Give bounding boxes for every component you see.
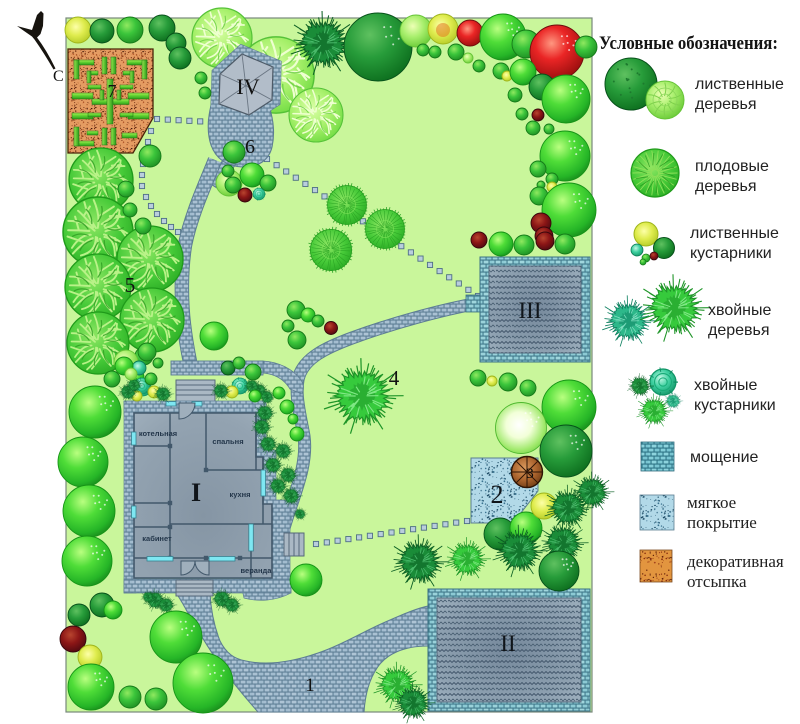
svg-text:5: 5 — [125, 273, 136, 297]
svg-text:декоративная: декоративная — [687, 552, 784, 571]
svg-text:хвойные: хвойные — [708, 302, 771, 319]
svg-text:веранда: веранда — [241, 566, 273, 575]
svg-text:IV: IV — [236, 74, 259, 99]
svg-text:кустарники: кустарники — [690, 245, 772, 262]
svg-text:котельная: котельная — [139, 429, 177, 438]
svg-text:деревья: деревья — [695, 96, 757, 113]
svg-text:Условные обозначения:: Условные обозначения: — [599, 33, 778, 54]
svg-text:мягкое: мягкое — [687, 493, 736, 512]
svg-text:I: I — [191, 478, 201, 507]
svg-text:3: 3 — [526, 466, 534, 482]
svg-text:отсыпка: отсыпка — [687, 572, 747, 591]
svg-text:кухня: кухня — [229, 490, 250, 499]
svg-text:кустарники: кустарники — [694, 397, 776, 414]
svg-text:деревья: деревья — [708, 322, 770, 339]
svg-text:деревья: деревья — [695, 178, 757, 195]
svg-text:хвойные: хвойные — [694, 377, 757, 394]
svg-text:покрытие: покрытие — [687, 513, 757, 532]
svg-text:II: II — [500, 631, 515, 656]
svg-text:7: 7 — [108, 81, 117, 101]
svg-text:С: С — [53, 68, 64, 85]
svg-text:4: 4 — [389, 366, 400, 390]
svg-text:спальня: спальня — [212, 437, 243, 446]
svg-text:6: 6 — [245, 136, 255, 158]
svg-text:лиственные: лиственные — [695, 76, 784, 93]
svg-text:кабинет: кабинет — [142, 534, 172, 543]
svg-text:мощение: мощение — [690, 449, 759, 466]
svg-text:лиственные: лиственные — [690, 225, 779, 242]
svg-text:плодовые: плодовые — [695, 158, 769, 175]
svg-text:2: 2 — [491, 480, 504, 509]
svg-text:1: 1 — [305, 675, 315, 696]
svg-text:III: III — [519, 298, 542, 323]
